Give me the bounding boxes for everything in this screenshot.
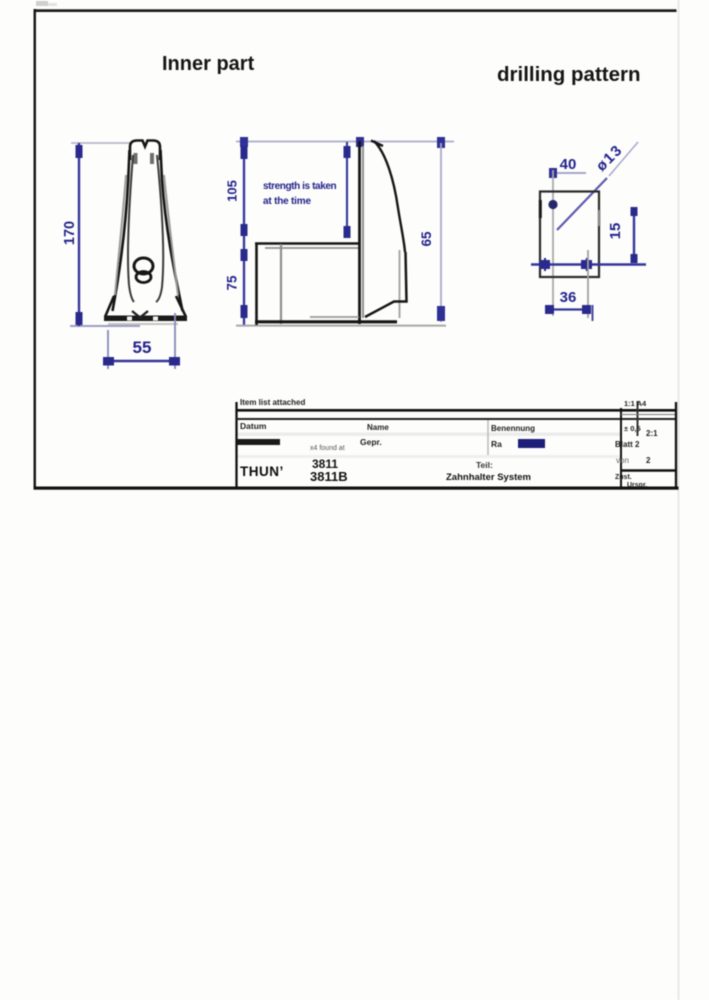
svg-text:Teil:: Teil: — [476, 460, 493, 470]
svg-text:105: 105 — [225, 180, 240, 202]
svg-text:Gepr.: Gepr. — [360, 437, 382, 447]
svg-text:Zahnhalter System: Zahnhalter System — [446, 472, 531, 483]
svg-text:x4 found at: x4 found at — [310, 445, 345, 452]
svg-text:2:1: 2:1 — [646, 429, 658, 438]
svg-text:170: 170 — [62, 221, 78, 245]
svg-text:Name: Name — [367, 423, 389, 432]
svg-text:Urspr.: Urspr. — [627, 482, 647, 489]
svg-text:36: 36 — [560, 289, 577, 306]
svg-text:Datum: Datum — [240, 421, 267, 431]
svg-text:at the time: at the time — [263, 196, 311, 207]
svg-text:75: 75 — [225, 275, 240, 291]
svg-text:55: 55 — [133, 338, 152, 357]
svg-text:Item list attached: Item list attached — [240, 398, 305, 407]
svg-text:Zust.: Zust. — [615, 474, 632, 481]
svg-text:65: 65 — [419, 231, 434, 247]
svg-text:Benennung: Benennung — [491, 424, 535, 433]
svg-text:± 0,5: ± 0,5 — [624, 424, 641, 433]
svg-text:Ra: Ra — [491, 439, 502, 449]
svg-text:Inner part: Inner part — [162, 53, 255, 75]
svg-text:15: 15 — [607, 223, 624, 240]
svg-text:von: von — [616, 456, 629, 465]
svg-text:40: 40 — [560, 156, 577, 173]
svg-text:strength is taken: strength is taken — [263, 181, 337, 192]
svg-text:Blatt 2: Blatt 2 — [615, 440, 640, 449]
svg-text:1:1 A4: 1:1 A4 — [624, 399, 647, 408]
svg-text:THUN’: THUN’ — [240, 464, 284, 479]
svg-text:2: 2 — [646, 456, 651, 465]
svg-text:3811B: 3811B — [310, 469, 348, 484]
svg-text:drilling pattern: drilling pattern — [497, 63, 641, 86]
